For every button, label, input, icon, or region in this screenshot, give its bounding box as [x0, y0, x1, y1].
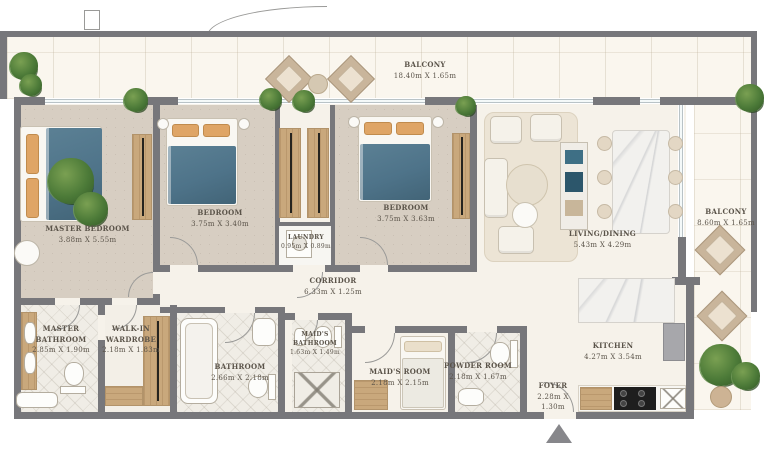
dining-chair [597, 136, 612, 151]
dining-table [612, 130, 670, 234]
room-name: BEDROOM [176, 208, 264, 219]
room-dims: 0.95m X 0.89m [278, 242, 334, 251]
plant [74, 192, 108, 226]
room-name: KITCHEN [558, 341, 668, 352]
room-dims: 3.75m X 3.40m [176, 219, 264, 230]
room-name: MASTER BEDROOM [30, 224, 145, 235]
wall-segment [14, 412, 544, 419]
wall-segment [153, 105, 160, 272]
burner [620, 400, 627, 407]
wall-segment [686, 284, 694, 416]
room-label-powder-room: POWDER ROOM 2.18m X 1.67m [432, 361, 524, 382]
room-name: MAID'S BATHROOM [286, 330, 344, 348]
dining-chair [597, 170, 612, 185]
plant [456, 96, 476, 116]
blanket [360, 144, 430, 200]
tv-decor [565, 200, 583, 216]
room-label-balcony-right: BALCONY 8.60m X 1.65m [697, 207, 755, 228]
room-label-laundry: LAUNDRY 0.95m X 0.89m [278, 233, 334, 251]
room-name: WALK-IN WARDROBE [100, 324, 162, 345]
plant [736, 84, 764, 112]
plant [20, 74, 42, 96]
tv-decor [565, 150, 583, 164]
armchair [530, 114, 562, 142]
wall-niche [84, 10, 100, 30]
room-dims: 8.60m X 1.65m [697, 218, 755, 229]
room-label-maids-bathroom: MAID'S BATHROOM 1.63m X 1.49m [286, 330, 344, 357]
room-label-bathroom: BATHROOM 2.66m X 2.18m [198, 362, 282, 383]
clothes-rail [290, 133, 292, 214]
room-name: BATHROOM [198, 362, 282, 373]
counter-wood [580, 387, 612, 410]
wall-segment [0, 31, 7, 99]
room-name: BALCONY [697, 207, 755, 218]
wall-segment [751, 31, 757, 312]
side-table [238, 118, 250, 130]
room-name: POWDER ROOM [432, 361, 524, 372]
burner [638, 390, 645, 397]
sink [458, 388, 484, 406]
wall-segment [350, 326, 365, 333]
room-label-bedroom-2: BEDROOM 3.75m X 3.40m [176, 208, 264, 229]
wall-segment [14, 97, 45, 105]
wardrobe-unit [279, 128, 301, 218]
pillow [404, 341, 442, 352]
room-dims: 2.18m X 1.67m [432, 372, 524, 383]
wall-segment [345, 313, 352, 412]
wardrobe-unit [307, 128, 329, 218]
toilet-tank [60, 386, 86, 394]
tv-console [132, 134, 152, 220]
coffee-table [506, 164, 548, 206]
entry-threshold [544, 412, 576, 419]
wall-segment [98, 305, 105, 315]
wall-segment [14, 298, 55, 305]
window [640, 98, 660, 104]
room-dims: 5.43m X 4.29m [545, 240, 660, 251]
sink [252, 318, 276, 346]
coffee-table [512, 202, 538, 228]
armchair [498, 226, 534, 254]
pillow [172, 124, 199, 137]
room-name: BALCONY [350, 60, 500, 71]
tv-decor [565, 172, 583, 192]
room-label-balcony-top: BALCONY 18.40m X 1.65m [350, 60, 500, 81]
room-dims: 18.40m X 1.65m [350, 71, 500, 82]
room-label-foyer: FOYER 2.28m X 1.30m [526, 381, 580, 413]
room-label-corridor: CORRIDOR 6.33m X 1.25m [288, 276, 378, 297]
wall-segment [143, 97, 178, 105]
room-name: CORRIDOR [288, 276, 378, 287]
room-label-master-bedroom: MASTER BEDROOM 3.88m X 5.55m [30, 224, 145, 245]
wall-segment [470, 105, 477, 272]
dining-chair [668, 204, 683, 219]
dining-chair [597, 204, 612, 219]
wall-segment [137, 298, 160, 305]
wardrobe-unit [452, 133, 470, 219]
entry-arrow [546, 424, 572, 443]
wall-segment [395, 326, 467, 333]
closet [105, 386, 143, 406]
room-dims: 4.27m X 3.54m [558, 352, 668, 363]
wall-segment [593, 97, 640, 105]
burner [620, 390, 627, 397]
wall-segment [678, 237, 686, 284]
wall-segment [80, 298, 112, 305]
plant [260, 88, 282, 110]
room-name: FOYER [526, 381, 580, 392]
wall-segment [285, 313, 295, 320]
armchair [490, 116, 522, 144]
wall-segment [0, 31, 751, 37]
room-name: LIVING/DINING [545, 229, 660, 240]
side-table [348, 116, 360, 128]
room-dims: 2.66m X 2.18m [198, 373, 282, 384]
room-label-kitchen: KITCHEN 4.27m X 3.54m [558, 341, 668, 362]
room-label-bedroom-3: BEDROOM 3.75m X 3.63m [362, 203, 450, 224]
room-name: BEDROOM [362, 203, 450, 214]
pillow [26, 178, 39, 218]
room-dims: 2.18m X 1.83m [100, 345, 162, 356]
room-dims: 3.88m X 5.55m [30, 235, 145, 246]
burner [638, 400, 645, 407]
blanket [168, 146, 236, 204]
wall-segment [160, 265, 170, 272]
room-dims: 2.28m X 1.30m [526, 392, 580, 413]
pot-plant [710, 386, 732, 408]
room-dims: 2.85m X 1.90m [32, 345, 90, 356]
side-table [157, 118, 169, 130]
room-label-master-bathroom: MASTER BATHROOM 2.85m X 1.90m [32, 324, 90, 356]
plant [732, 362, 760, 390]
pillow [396, 122, 424, 135]
window [462, 98, 593, 104]
console-detail [142, 138, 144, 215]
wall-segment [330, 105, 335, 222]
bathtub [16, 392, 58, 408]
side-table [308, 74, 328, 94]
wall-segment [170, 305, 177, 412]
chaise [484, 158, 508, 218]
clothes-rail [461, 137, 463, 214]
plant [293, 90, 315, 112]
room-name: LAUNDRY [278, 233, 334, 242]
kitchen-sink [660, 388, 686, 409]
wall-segment [325, 265, 360, 272]
pillow [364, 122, 392, 135]
plant [124, 88, 148, 112]
clothes-rail [318, 133, 320, 214]
wall-segment [198, 265, 293, 272]
dining-chair [668, 170, 683, 185]
side-table [432, 116, 444, 128]
room-dims: 1.63m X 1.49m [286, 348, 344, 357]
room-label-living-dining: LIVING/DINING 5.43m X 4.29m [545, 229, 660, 250]
wall-segment [388, 265, 475, 272]
room-dims: 6.33m X 1.25m [288, 287, 378, 298]
kitchen-island [578, 278, 675, 323]
dining-chair [668, 136, 683, 151]
shower [294, 372, 340, 408]
toilet [64, 362, 84, 386]
room-dims: 3.75m X 3.63m [362, 214, 450, 225]
floor-plan: BALCONY 18.40m X 1.65m MASTER BEDROOM 3.… [0, 0, 768, 451]
pillow [203, 124, 230, 137]
wall-segment [278, 307, 285, 412]
pillow [26, 134, 39, 174]
room-name: MASTER BATHROOM [32, 324, 90, 345]
wall-segment [275, 222, 335, 226]
wall-segment [576, 412, 694, 419]
room-label-walk-in-wardrobe: WALK-IN WARDROBE 2.18m X 1.83m [100, 324, 162, 356]
bathtub-inner [185, 323, 213, 399]
wall-segment [672, 277, 700, 285]
